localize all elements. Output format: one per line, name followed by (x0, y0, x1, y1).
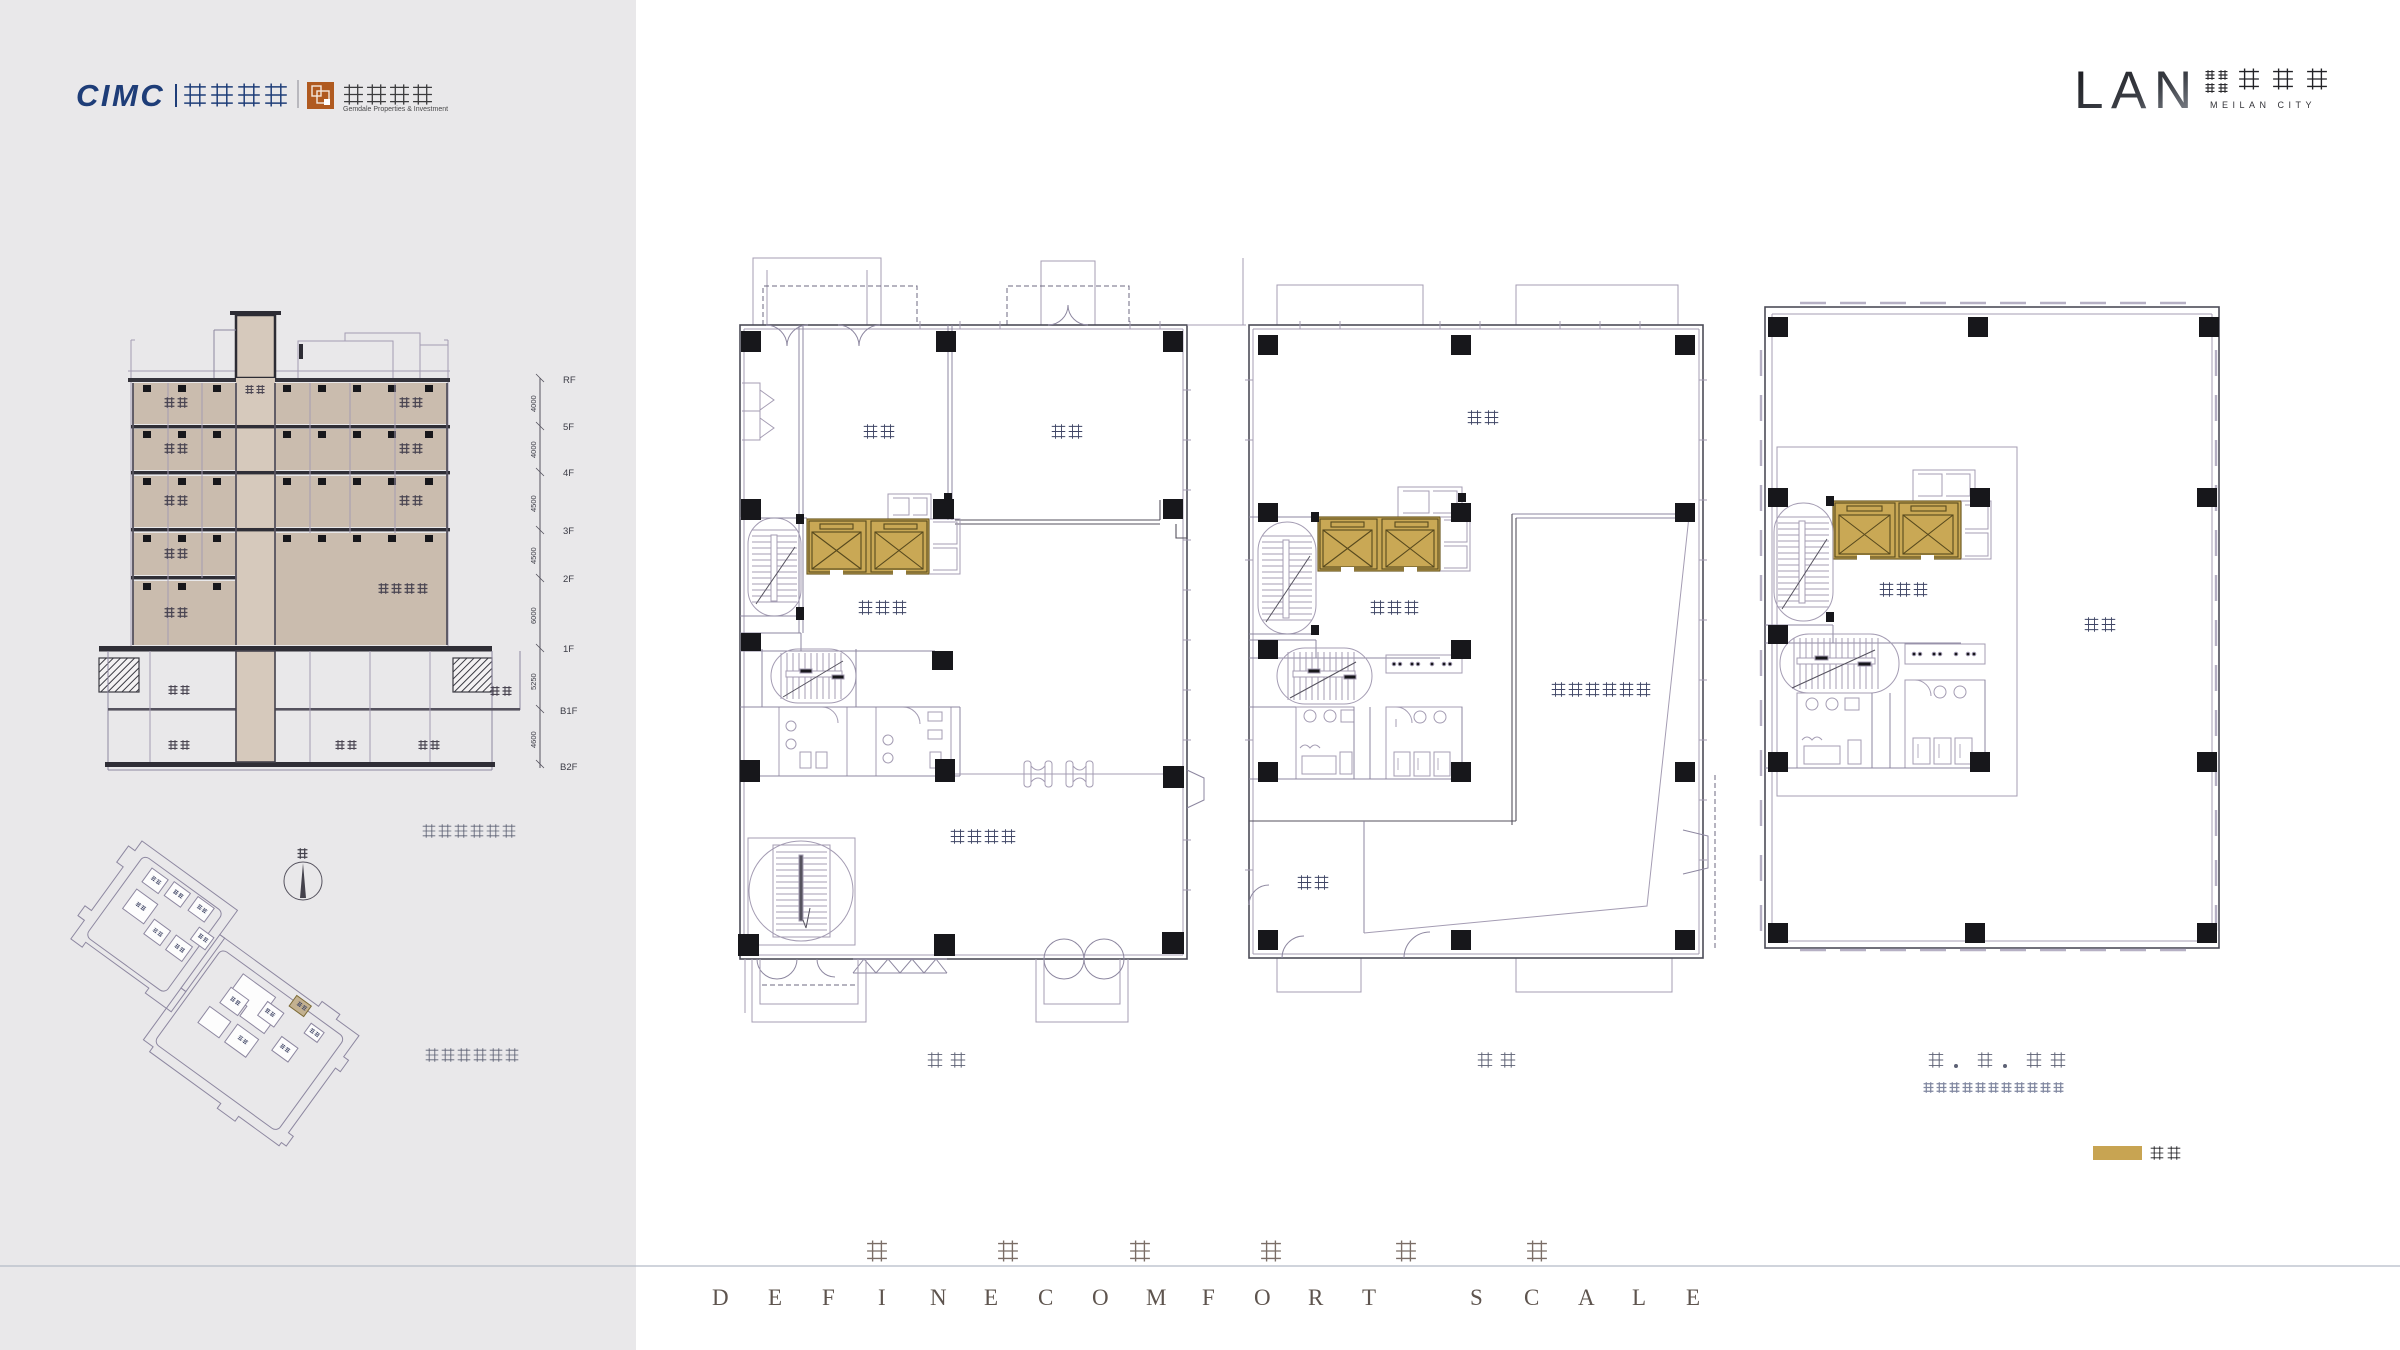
svg-text:CIMC: CIMC (76, 78, 165, 113)
svg-text:F: F (1202, 1285, 1215, 1310)
svg-text:E: E (1686, 1285, 1700, 1310)
svg-text:1F: 1F (563, 644, 574, 655)
svg-text:LAN: LAN (2074, 61, 2200, 120)
svg-text:N: N (930, 1285, 947, 1310)
svg-text:6000: 6000 (529, 607, 538, 624)
svg-text:4F: 4F (563, 468, 574, 479)
svg-text:3F: 3F (563, 526, 574, 537)
svg-text:RF: RF (563, 375, 576, 386)
svg-text:E: E (768, 1285, 782, 1310)
svg-text:4500: 4500 (529, 495, 538, 512)
svg-text:O: O (1092, 1285, 1109, 1310)
svg-text:4600: 4600 (529, 731, 538, 748)
svg-text:O: O (1254, 1285, 1271, 1310)
svg-text:M: M (1146, 1285, 1166, 1310)
svg-text:C: C (1524, 1285, 1539, 1310)
svg-text:A: A (1578, 1285, 1595, 1310)
svg-text:4000: 4000 (529, 395, 538, 412)
svg-text:R: R (1308, 1285, 1324, 1310)
svg-text:2F: 2F (563, 574, 574, 585)
svg-text:I: I (878, 1285, 886, 1310)
svg-text:Gemdale Properties & Investmen: Gemdale Properties & Investment (343, 106, 448, 113)
svg-text:4500: 4500 (529, 547, 538, 564)
svg-text:D: D (712, 1285, 729, 1310)
svg-text:T: T (1362, 1285, 1376, 1310)
svg-text:C: C (1038, 1285, 1053, 1310)
svg-text:MEILAN CITY: MEILAN CITY (2210, 100, 2316, 110)
svg-text:F: F (822, 1285, 835, 1310)
svg-text:B2F: B2F (560, 762, 578, 773)
svg-text:5250: 5250 (529, 673, 538, 690)
svg-text:5F: 5F (563, 422, 574, 433)
svg-text:4000: 4000 (529, 441, 538, 458)
svg-text:B1F: B1F (560, 706, 578, 717)
svg-text:L: L (1632, 1285, 1646, 1310)
svg-text:S: S (1470, 1285, 1483, 1310)
svg-text:E: E (984, 1285, 998, 1310)
